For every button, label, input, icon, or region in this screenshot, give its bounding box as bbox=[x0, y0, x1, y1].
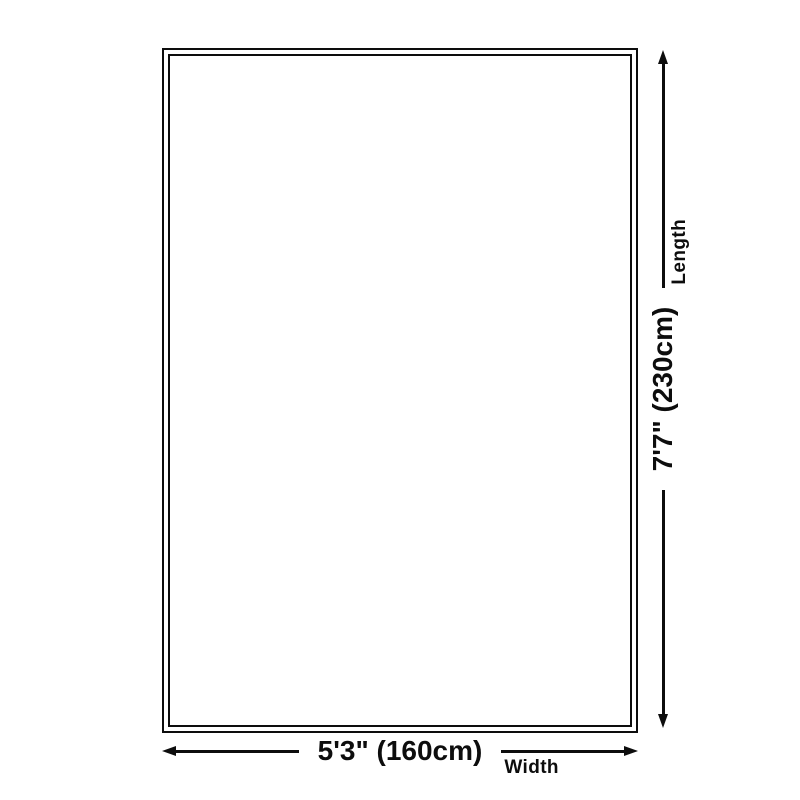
width-dimension-line-left bbox=[176, 750, 299, 753]
arrowhead-down-icon bbox=[658, 714, 668, 728]
length-label: Length bbox=[669, 219, 691, 285]
rug-outline bbox=[162, 48, 638, 733]
width-value: 5'3" (160cm) bbox=[318, 737, 483, 765]
width-label: Width bbox=[504, 757, 559, 779]
length-dimension-line-bottom bbox=[662, 490, 665, 714]
width-dimension-line-right: Width bbox=[501, 750, 624, 753]
length-dimension: 7'7" (230cm) Length bbox=[643, 50, 683, 728]
arrowhead-up-icon bbox=[658, 50, 668, 64]
width-dimension: 5'3" (160cm) Width bbox=[162, 731, 638, 771]
size-diagram-canvas: 5'3" (160cm) Width 7'7" (230cm) Length bbox=[0, 0, 800, 800]
length-dimension-line-top: Length bbox=[662, 64, 665, 288]
length-value: 7'7" (230cm) bbox=[649, 307, 677, 472]
arrowhead-left-icon bbox=[162, 746, 176, 756]
arrowhead-right-icon bbox=[624, 746, 638, 756]
rug-inner-border bbox=[168, 54, 632, 727]
